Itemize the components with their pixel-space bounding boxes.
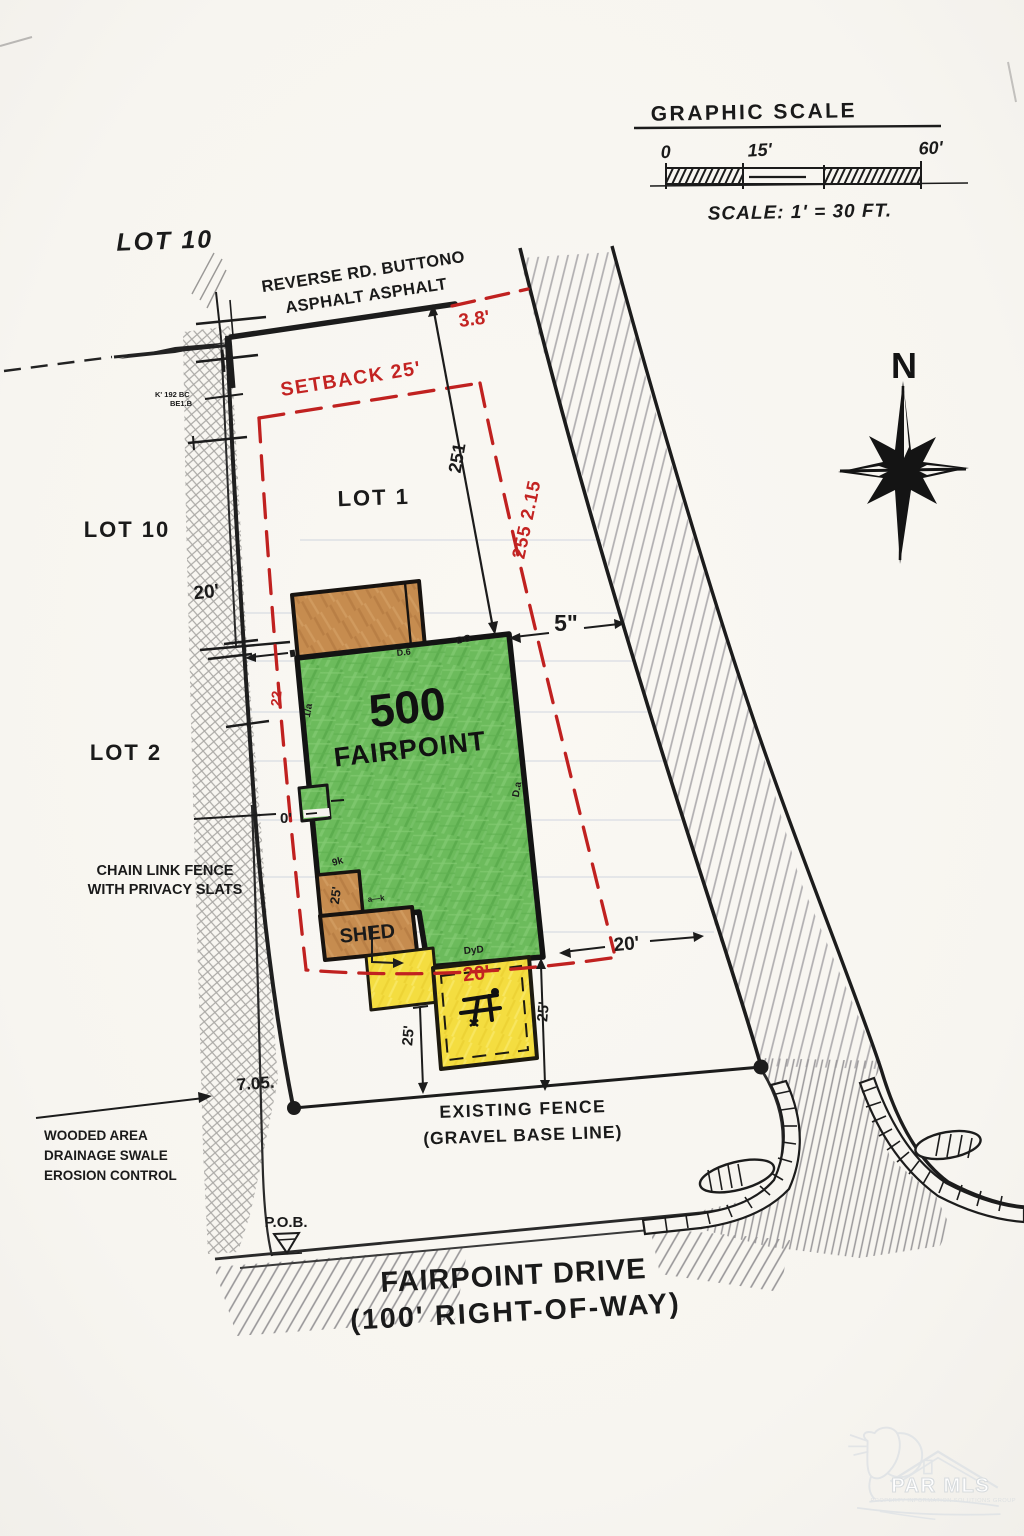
svg-text:0': 0' bbox=[280, 810, 292, 827]
svg-text:EROSION CONTROL: EROSION CONTROL bbox=[44, 1168, 177, 1183]
svg-text:LOT 10: LOT 10 bbox=[84, 517, 171, 542]
svg-text:20': 20' bbox=[462, 962, 491, 987]
svg-text:GRAPHIC SCALE: GRAPHIC SCALE bbox=[651, 99, 858, 126]
svg-text:CHAIN LINK FENCE: CHAIN LINK FENCE bbox=[97, 863, 234, 879]
svg-text:D.6: D.6 bbox=[396, 647, 411, 658]
svg-text:LOT 10: LOT 10 bbox=[116, 225, 214, 256]
svg-text:LOT 1: LOT 1 bbox=[337, 484, 410, 512]
svg-text:N: N bbox=[891, 345, 917, 386]
svg-text:3.8': 3.8' bbox=[457, 307, 491, 332]
svg-text:5": 5" bbox=[554, 610, 578, 636]
svg-text:60': 60' bbox=[918, 137, 944, 158]
svg-text:DRAINAGE SWALE: DRAINAGE SWALE bbox=[44, 1148, 168, 1163]
svg-text:25': 25' bbox=[327, 886, 344, 905]
svg-text:500: 500 bbox=[366, 677, 448, 737]
svg-text:25': 25' bbox=[534, 1001, 553, 1023]
svg-text:BE1.B: BE1.B bbox=[170, 399, 193, 408]
svg-text:P.O.B.: P.O.B. bbox=[264, 1214, 307, 1231]
svg-text:25': 25' bbox=[399, 1025, 418, 1047]
svg-text:20': 20' bbox=[193, 581, 221, 605]
svg-text:WITH PRIVACY SLATS: WITH PRIVACY SLATS bbox=[88, 882, 243, 898]
svg-text:a—k: a—k bbox=[367, 893, 385, 904]
svg-text:20': 20' bbox=[613, 933, 640, 956]
svg-text:22: 22 bbox=[267, 690, 284, 707]
svg-text:15': 15' bbox=[747, 139, 773, 160]
svg-text:PAR MLS: PAR MLS bbox=[891, 1475, 990, 1497]
svg-text:SCALE: 1' = 30 FT.: SCALE: 1' = 30 FT. bbox=[708, 200, 893, 224]
svg-text:0: 0 bbox=[660, 142, 671, 162]
svg-text:DyD: DyD bbox=[463, 944, 484, 957]
svg-text:K' 192 BC: K' 192 BC bbox=[155, 390, 190, 399]
svg-text:LOT 2: LOT 2 bbox=[90, 740, 162, 765]
svg-text:WOODED AREA: WOODED AREA bbox=[44, 1128, 148, 1143]
svg-text:7.05.: 7.05. bbox=[236, 1073, 275, 1095]
